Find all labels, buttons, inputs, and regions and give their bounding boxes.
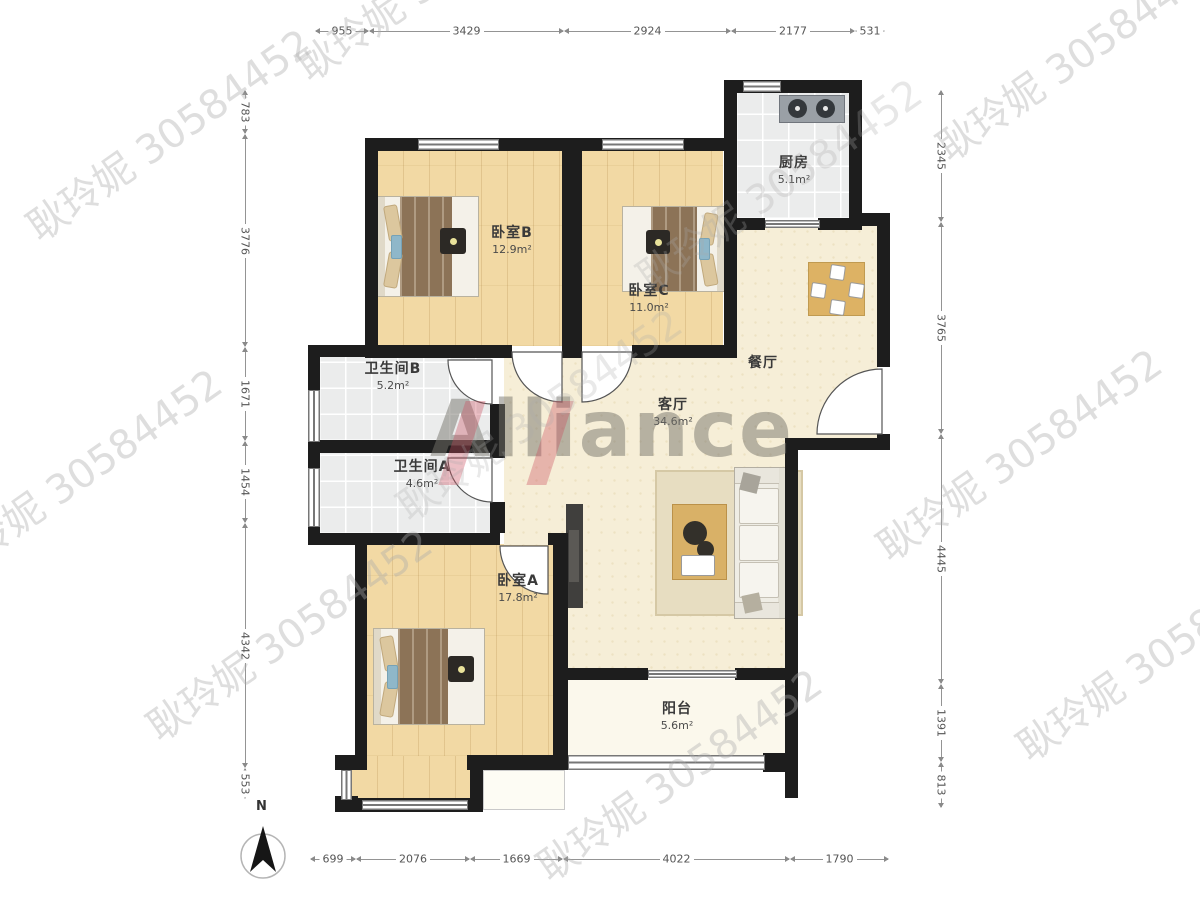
room-label-bath-a: 卫生间A 4.6m² [394,456,451,490]
dimension-segment: 3776 [238,134,252,347]
room-label-balcony: 阳台 5.6m² [661,698,694,732]
compass-north-label: N [256,799,267,814]
dimension-segment: 4445 [934,434,948,684]
room-label-kitchen: 厨房 5.1m² [778,152,811,186]
door-arc-bath-b [448,360,492,404]
dimension-segment: 3765 [934,222,948,434]
dimension-segment: 1671 [238,347,252,441]
dimension-segment: 783 [238,90,252,134]
room-label-living: 客厅 34.6m² [653,394,693,428]
dimension-segment: 2177 [731,24,855,38]
dimension-segment: 4022 [563,852,790,866]
dimension-segment: 2345 [934,90,948,222]
room-label-bedroom-c: 卧室C 11.0m² [628,280,669,314]
door-arcs-layer [0,0,1200,903]
door-arc-entry [817,369,882,434]
dimension-segment: 955 [315,24,369,38]
dimension-segment: 813 [934,762,948,808]
dimension-segment: 2076 [356,852,470,866]
room-label-dining: 餐厅 [748,352,778,372]
dimension-segment: 1391 [934,684,948,762]
room-label-bath-b: 卫生间B 5.2m² [365,358,422,392]
door-arc-bath-a [448,458,492,502]
room-label-bedroom-a: 卧室A 17.8m² [497,570,539,604]
dimension-segment: 4342 [238,523,252,768]
dimension-segment: 3429 [369,24,564,38]
room-label-bedroom-b: 卧室B 12.9m² [491,222,533,256]
north-arrow-icon [250,826,276,872]
dimension-segment: 1454 [238,441,252,523]
dimension-segment: 553 [238,768,252,799]
dimension-segment: 531 [855,24,885,38]
dimension-segment: 699 [310,852,356,866]
floor-plan-image: N 卧室B 12.9m² 卧室C 11.0m² 厨房 5.1m² 餐厅 客厅 3… [0,0,1200,903]
door-arc-bedroom-b [512,352,562,402]
dimension-segment: 1669 [470,852,563,866]
dimension-segment: 2924 [564,24,731,38]
door-arc-bedroom-c [582,352,632,402]
dimension-segment: 1790 [790,852,889,866]
